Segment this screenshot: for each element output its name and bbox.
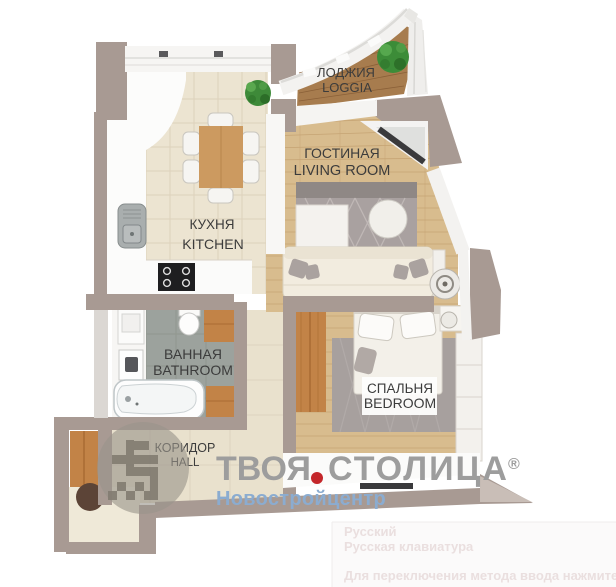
svg-text:ТВОЯ: ТВОЯ — [216, 450, 311, 488]
svg-text:LOGGIA: LOGGIA — [322, 80, 372, 95]
svg-text:Новостройцентр: Новостройцентр — [216, 488, 386, 510]
svg-text:ЛОДЖИЯ: ЛОДЖИЯ — [317, 65, 375, 80]
svg-text:ВАННАЯ: ВАННАЯ — [164, 346, 222, 362]
svg-text:Русская клавиатура: Русская клавиатура — [344, 539, 474, 554]
svg-text:ГОСТИНАЯ: ГОСТИНАЯ — [304, 145, 380, 161]
svg-text:СПАЛЬНЯ: СПАЛЬНЯ — [367, 381, 433, 396]
svg-text:BATHROOM: BATHROOM — [153, 362, 233, 378]
svg-text:КУХНЯ: КУХНЯ — [189, 217, 234, 232]
svg-text:Русский: Русский — [344, 524, 397, 539]
svg-text:Для переключения метода ввода: Для переключения метода ввода нажмите кл… — [344, 568, 616, 583]
svg-text:KITCHEN: KITCHEN — [182, 236, 243, 252]
svg-text:®: ® — [508, 456, 520, 473]
svg-text:LIVING ROOM: LIVING ROOM — [294, 163, 391, 179]
svg-text:СТОЛИЦА: СТОЛИЦА — [328, 450, 509, 488]
svg-text:BEDROOM: BEDROOM — [364, 395, 436, 411]
